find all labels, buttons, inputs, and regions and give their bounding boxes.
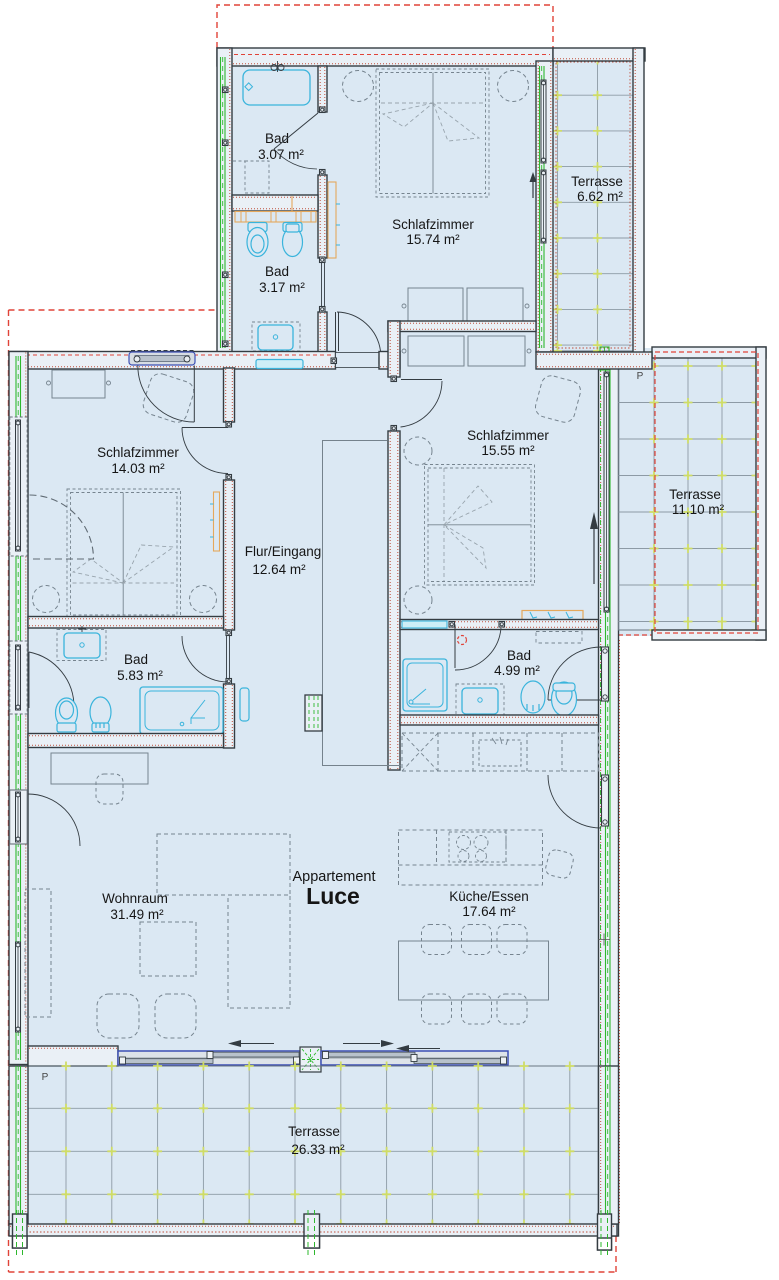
svg-text:Terrasse: Terrasse	[669, 487, 721, 502]
svg-text:Bad: Bad	[124, 652, 148, 667]
svg-text:Bad: Bad	[507, 648, 531, 663]
svg-text:P: P	[42, 1072, 49, 1083]
svg-text:Bad: Bad	[265, 264, 289, 279]
svg-text:4.99 m²: 4.99 m²	[494, 663, 540, 678]
svg-text:Terrasse: Terrasse	[288, 1124, 340, 1139]
svg-text:11.10 m²: 11.10 m²	[672, 502, 725, 517]
svg-text:Bad: Bad	[265, 131, 289, 146]
svg-text:P: P	[637, 371, 644, 382]
svg-text:5.83 m²: 5.83 m²	[117, 668, 163, 683]
svg-text:Wohnraum: Wohnraum	[102, 891, 168, 906]
svg-text:12.64 m²: 12.64 m²	[252, 562, 306, 577]
svg-text:3.17 m²: 3.17 m²	[259, 280, 305, 295]
svg-text:31.49 m²: 31.49 m²	[110, 907, 164, 922]
svg-text:6.62 m²: 6.62 m²	[577, 189, 623, 204]
svg-text:Schlafzimmer: Schlafzimmer	[392, 217, 474, 232]
svg-text:Schlafzimmer: Schlafzimmer	[97, 445, 179, 460]
svg-text:15.74 m²: 15.74 m²	[406, 232, 460, 247]
svg-text:14.03 m²: 14.03 m²	[111, 461, 165, 476]
svg-text:17.64 m²: 17.64 m²	[462, 904, 516, 919]
svg-text:Schlafzimmer: Schlafzimmer	[467, 428, 549, 443]
svg-text:Küche/Essen: Küche/Essen	[449, 889, 529, 904]
svg-text:Terrasse: Terrasse	[571, 174, 623, 189]
svg-text:Luce: Luce	[306, 883, 360, 909]
svg-text:15.55 m²: 15.55 m²	[481, 443, 535, 458]
svg-text:3.07 m²: 3.07 m²	[258, 147, 304, 162]
svg-text:Flur/Eingang: Flur/Eingang	[245, 544, 322, 559]
svg-text:26.33 m²: 26.33 m²	[291, 1142, 345, 1157]
